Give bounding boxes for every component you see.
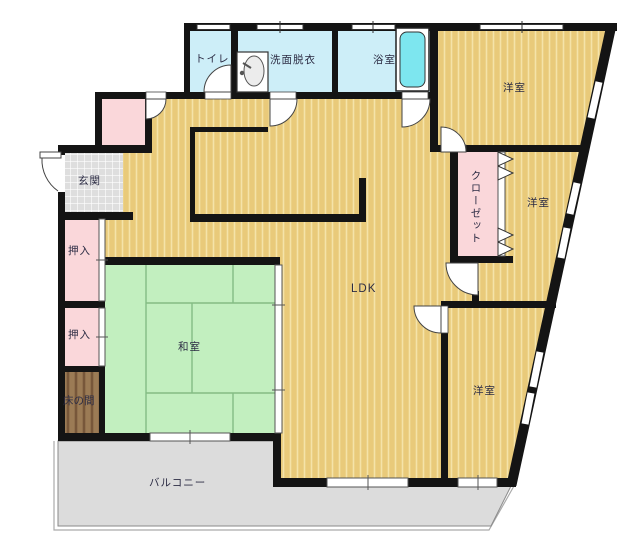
- room-label-oshiire-2: 押入: [68, 330, 91, 341]
- room-label-bathroom: 浴室: [373, 55, 396, 66]
- sink-icon: [237, 52, 268, 92]
- room-label-closet: クローゼット: [470, 170, 481, 245]
- bathtub-icon: [396, 28, 429, 91]
- room-label-ldk: LDK: [351, 284, 376, 296]
- room-label-tokonoma: 床の間: [63, 396, 95, 407]
- room-storage-closet: [100, 98, 147, 146]
- floor-plan: トイレ 洗面脱衣 浴室 洋室 クローゼット 洋室 玄関 押入 押入 床の間 和室…: [0, 0, 640, 551]
- room-label-bedroom-1: 洋室: [503, 83, 526, 94]
- room-label-balcony: バルコニー: [149, 478, 206, 489]
- room-label-washroom: 洗面脱衣: [270, 55, 316, 66]
- room-label-toilet: トイレ: [195, 54, 230, 65]
- room-label-entrance: 玄関: [78, 176, 101, 187]
- room-label-oshiire-1: 押入: [68, 246, 91, 257]
- room-label-bedroom-2: 洋室: [527, 198, 550, 209]
- floor-plan-drawing: [0, 0, 640, 551]
- room-oshiire-1: [62, 219, 99, 301]
- room-label-bedroom-3: 洋室: [473, 386, 496, 397]
- front-door: [40, 152, 65, 192]
- room-label-washitsu: 和室: [178, 342, 201, 353]
